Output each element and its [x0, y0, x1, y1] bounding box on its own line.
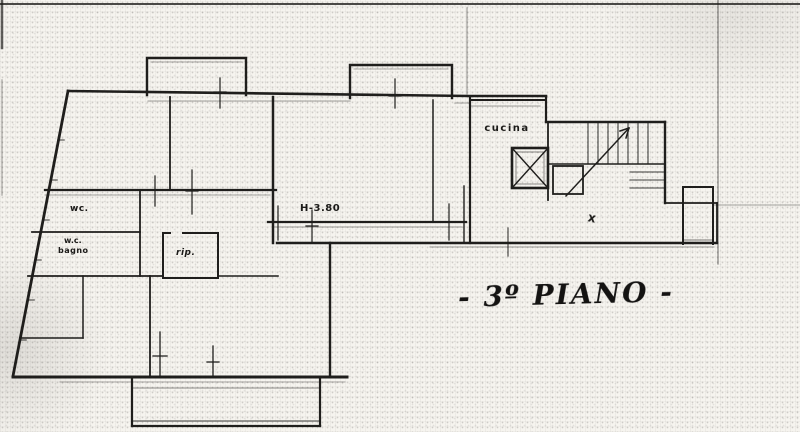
- label-wc: w.c.: [64, 236, 82, 245]
- label-kitchen: cucina: [480, 123, 534, 134]
- balcony-bottom: [132, 378, 320, 426]
- label-wc-small: wc.: [70, 204, 89, 214]
- floor-title: - 3º PIANO -: [458, 275, 669, 313]
- label-storage: rip.: [176, 248, 195, 258]
- sheet-border-lines: [0, 0, 800, 264]
- staircase-icon: [548, 122, 665, 200]
- floorplan-drawing: [0, 0, 800, 432]
- outer-walls: [13, 91, 717, 382]
- balcony-top-left: [147, 58, 246, 95]
- interior-walls: [20, 97, 546, 377]
- label-bathroom: bagno: [58, 246, 89, 255]
- balcony-right: [683, 187, 713, 244]
- ceiling-height-note: H-3.80: [300, 203, 340, 214]
- balcony-top-center: [350, 65, 452, 98]
- elevator-icon: [512, 148, 548, 188]
- floorplan-sheet: cucina wc. w.c. bagno rip. H-3.80 x - 3º…: [0, 0, 800, 432]
